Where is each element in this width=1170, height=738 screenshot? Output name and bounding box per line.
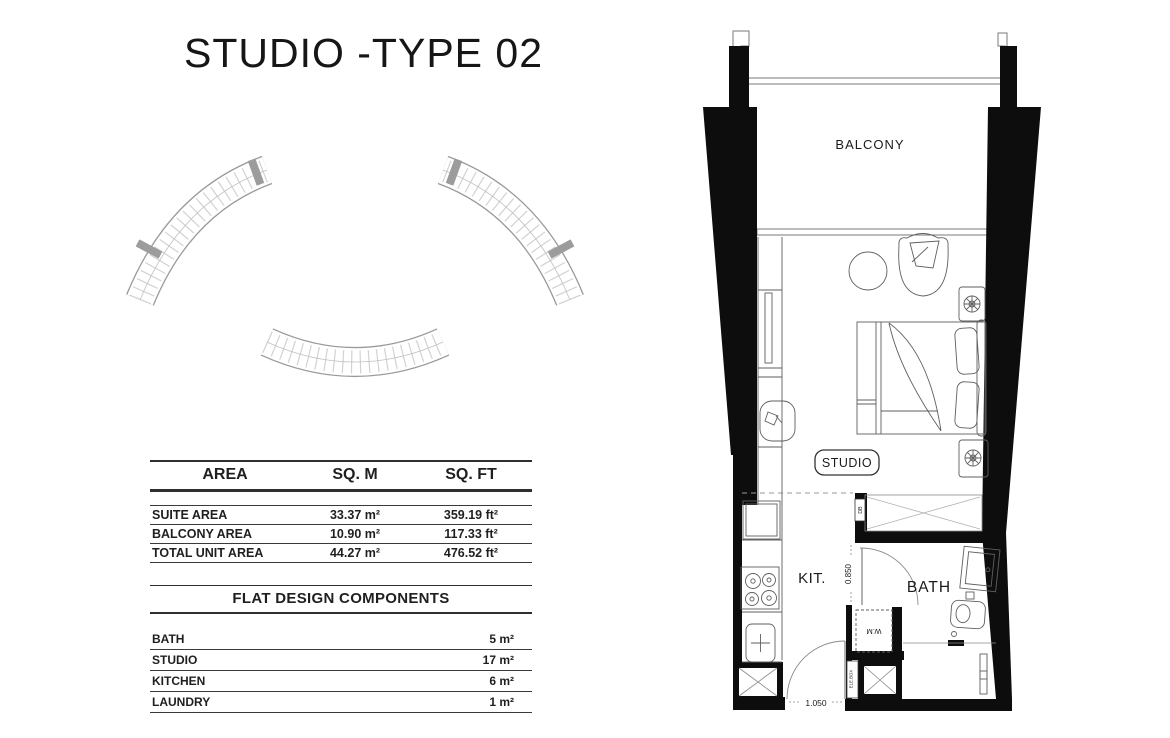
col-header-area: AREA <box>150 466 300 484</box>
ele-box-label: ELE.BOX <box>849 670 854 689</box>
bath-label: BATH <box>907 579 951 596</box>
row-label: SUITE AREA <box>150 508 300 522</box>
row-sqm: 44.27 m² <box>300 546 410 560</box>
desk-chair <box>760 401 795 441</box>
armchair <box>899 234 948 297</box>
site-wing-right <box>443 158 574 300</box>
balcony-railing <box>733 31 1007 235</box>
wm-label: W.M <box>867 627 882 636</box>
shower-drain <box>980 654 987 694</box>
component-label: LAUNDRY <box>152 695 210 709</box>
area-table-body: SUITE AREA 33.37 m² 359.19 ft² BALCONY A… <box>150 505 532 563</box>
table-row: BALCONY AREA 10.90 m² 117.33 ft² <box>150 525 532 544</box>
list-item: BATH 5 m² <box>150 629 532 650</box>
electrical-shaft: ELE.BOX <box>847 660 902 700</box>
tv-console <box>758 237 782 505</box>
page-title: STUDIO -TYPE 02 <box>184 30 543 77</box>
kitchen-shaft <box>733 662 783 702</box>
balcony-label: BALCONY <box>835 137 904 152</box>
component-value: 17 m² <box>483 653 530 667</box>
row-sqm: 33.37 m² <box>300 508 410 522</box>
studio-label-badge: STUDIO <box>815 450 879 475</box>
component-value: 5 m² <box>489 632 530 646</box>
floorplan-sheet: STUDIO -TYPE 02 AREA SQ. <box>0 0 1170 738</box>
round-table <box>849 252 887 290</box>
kitchen-label: KIT. <box>798 570 826 587</box>
kitchen-fixtures <box>741 501 782 662</box>
components-title: FLAT DESIGN COMPONENTS <box>150 585 532 614</box>
corridor-dimension: 0.850 <box>844 563 853 584</box>
col-header-sqft: SQ. FT <box>410 466 532 484</box>
distribution-board: DB <box>855 499 865 521</box>
row-label: TOTAL UNIT AREA <box>150 546 300 560</box>
table-row: TOTAL UNIT AREA 44.27 m² 476.52 ft² <box>150 544 532 563</box>
row-label: BALCONY AREA <box>150 527 300 541</box>
list-item: STUDIO 17 m² <box>150 650 532 671</box>
unit-floor-plan: ELE.BOX DB 1.050 0.850 <box>690 20 1050 720</box>
component-value: 6 m² <box>489 674 530 688</box>
area-table: AREA SQ. M SQ. FT SUITE AREA 33.37 m² 35… <box>150 460 532 563</box>
row-sqft: 117.33 ft² <box>410 527 532 541</box>
bed <box>857 320 986 436</box>
toilet <box>950 600 986 629</box>
nightstand-lamp <box>959 287 985 321</box>
component-value: 1 m² <box>489 695 530 709</box>
component-label: BATH <box>152 632 184 646</box>
area-table-header: AREA SQ. M SQ. FT <box>150 460 532 492</box>
site-wing-bottom <box>267 342 443 362</box>
studio-label: STUDIO <box>822 456 872 470</box>
list-item: KITCHEN 6 m² <box>150 671 532 692</box>
db-label: DB <box>858 506 864 514</box>
row-sqft: 359.19 ft² <box>410 508 532 522</box>
closet <box>865 495 982 531</box>
row-sqm: 10.90 m² <box>300 527 410 541</box>
row-sqft: 476.52 ft² <box>410 546 532 560</box>
site-wing-left <box>136 158 267 300</box>
tv <box>765 293 772 363</box>
component-label: KITCHEN <box>152 674 205 688</box>
component-label: STUDIO <box>152 653 197 667</box>
table-row: SUITE AREA 33.37 m² 359.19 ft² <box>150 505 532 525</box>
entry-dimension: 1.050 <box>805 698 827 708</box>
components-list: BATH 5 m² STUDIO 17 m² KITCHEN 6 m² LAUN… <box>150 629 532 713</box>
list-item: LAUNDRY 1 m² <box>150 692 532 713</box>
components-table: FLAT DESIGN COMPONENTS BATH 5 m² STUDIO … <box>150 585 532 713</box>
col-header-sqm: SQ. M <box>300 466 410 484</box>
site-plan <box>125 150 585 380</box>
